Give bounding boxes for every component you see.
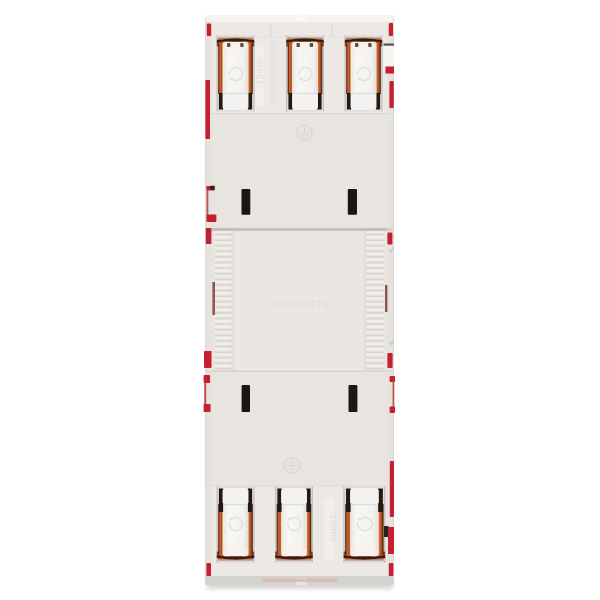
svg-text:Schneider: Schneider xyxy=(271,297,329,311)
svg-text:Electric: Electric xyxy=(285,291,314,298)
svg-text:12mm: 12mm xyxy=(255,57,266,85)
svg-text:12mm: 12mm xyxy=(328,514,339,542)
